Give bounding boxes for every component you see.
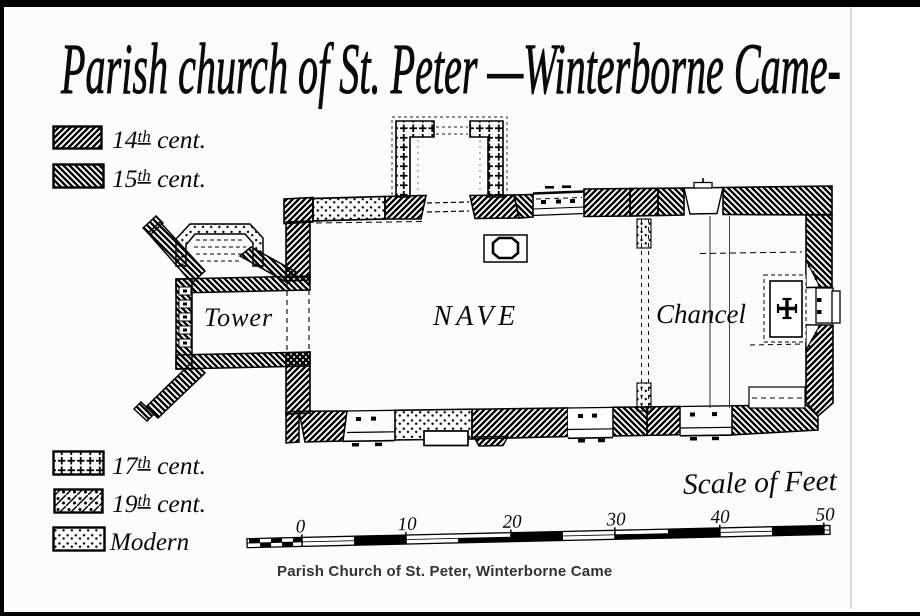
- svg-text:15th cent.: 15th cent.: [112, 164, 206, 193]
- svg-text:0: 0: [295, 516, 305, 537]
- svg-text:Scale of Feet: Scale of Feet: [682, 465, 838, 501]
- svg-text:19th cent.: 19th cent.: [112, 489, 206, 518]
- svg-text:10: 10: [397, 514, 417, 535]
- svg-text:30: 30: [605, 509, 626, 530]
- svg-text:Chancel: Chancel: [656, 299, 746, 329]
- svg-text:14th cent.: 14th cent.: [112, 125, 206, 154]
- svg-text:NAVE: NAVE: [432, 301, 520, 332]
- svg-text:50: 50: [815, 504, 835, 525]
- svg-text:Modern: Modern: [109, 529, 189, 556]
- svg-text:Parish church of St. Peter —Wi: Parish church of St. Peter —Winterborne …: [60, 29, 841, 109]
- svg-text:17th cent.: 17th cent.: [112, 451, 206, 480]
- svg-text:20: 20: [502, 511, 522, 532]
- svg-text:Tower: Tower: [204, 303, 273, 332]
